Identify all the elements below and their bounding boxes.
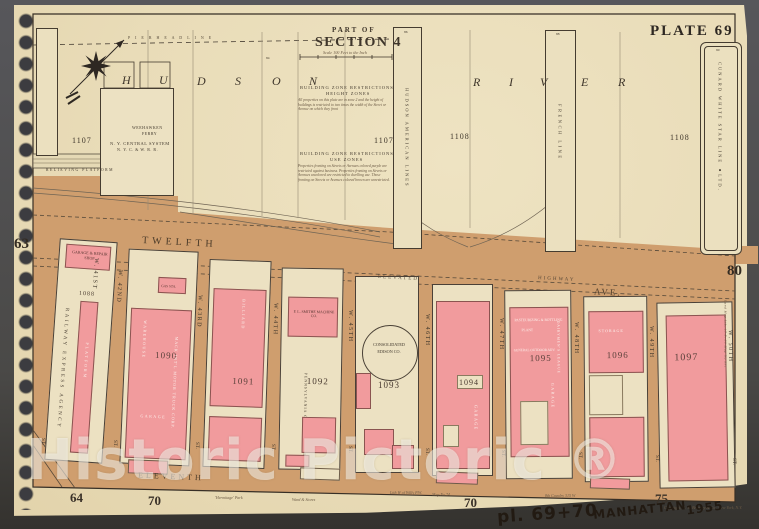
marginal-note: 'Hermitage' Park xyxy=(215,496,243,500)
title-section: SECTION 4 xyxy=(315,36,402,50)
parcel-number: 1107 xyxy=(72,137,92,145)
height-zone-body: All properties on this plate are in zone… xyxy=(298,98,390,112)
pier-label-cunard: CUNARD WHITE STAR LINE ●LTD. xyxy=(717,62,722,192)
block-number: 1097 xyxy=(674,353,698,363)
parcel-number: 1108 xyxy=(670,134,690,142)
pier-label-hudson-american: HUDSON AMERICAN LINES xyxy=(404,88,409,188)
building-label: GARAGE xyxy=(473,405,477,431)
river-name-letter: E xyxy=(581,76,588,88)
use-zone-body: Properties fronting on Streets or Avenue… xyxy=(298,164,390,183)
ferry-name-1: WEEHAWKEN xyxy=(132,126,163,130)
building-mass xyxy=(210,288,267,408)
river-name-letter: I xyxy=(509,76,513,88)
pier-number: 88 xyxy=(556,33,560,37)
street-suffix: ST. xyxy=(654,455,659,462)
pier-structure xyxy=(36,28,58,156)
compass-feather xyxy=(66,92,80,104)
building-smithe: F. L. SMITHE MACHINE CO. xyxy=(288,297,339,338)
building-label-storage: STORAGE xyxy=(598,329,623,334)
river-name-letter: H xyxy=(122,74,131,86)
block-number: 1091 xyxy=(232,377,254,387)
ferry-operator-1: N. Y. CENTRAL SYSTEM xyxy=(110,142,170,147)
river-name-letter: U xyxy=(159,74,168,86)
river-name-letter: S xyxy=(235,75,241,87)
compass-needle xyxy=(70,40,124,94)
height-zone-title: BUILDING ZONE RESTRICTIONS xyxy=(300,86,394,91)
ave-label: AVE. xyxy=(594,287,622,297)
river-name-letter: R xyxy=(618,76,625,88)
marginal-note: 8th Cavalry 315 W xyxy=(545,494,575,498)
pier-label-french-line: FRENCH LINE xyxy=(557,104,562,161)
building-label: F. L. SMITHE MACHINE CO. xyxy=(293,310,335,319)
block-number: 1095 xyxy=(530,354,552,363)
plate-number: PLATE 69 xyxy=(650,24,734,39)
building-label: GARAGE & REPAIR SHOP xyxy=(69,250,110,262)
street-label-w49: W. 49TH xyxy=(648,326,654,359)
street-label-w45: W. 45TH xyxy=(347,310,353,343)
building-label: GAS STA. xyxy=(161,284,176,289)
parcel-number: 1108 xyxy=(450,133,470,141)
street-label-w46: W. 46TH xyxy=(424,314,430,347)
river-name-letter: O xyxy=(272,75,281,87)
building-label-garage: GARAGE xyxy=(550,383,555,409)
watermark: Historic Pictoric ® xyxy=(26,428,623,493)
marginal-note: Ward & Stores xyxy=(292,498,315,502)
building-label-dairy: DAIRYMEN'S LEAGUE xyxy=(555,321,559,374)
relieving-platform xyxy=(33,154,101,168)
marginal-note-side: Land Map Lib. 17 P. 39 Map No 891 xyxy=(723,300,727,368)
building-label: PLATFORM xyxy=(82,342,89,379)
building-mass xyxy=(588,311,644,373)
atlas-plate-scan: GARAGE & REPAIR SHOP 1088 PLATFORM RAILW… xyxy=(0,0,759,529)
river-name-letter: R xyxy=(473,76,480,88)
block-number: 1092 xyxy=(307,377,329,386)
street-label-w43: W. 43RD xyxy=(195,295,202,328)
street-label-w50: W. 50TH xyxy=(727,330,734,363)
pier-number: 86 xyxy=(404,31,408,35)
pier-number: 84 xyxy=(266,57,270,61)
street-label-w44: W. 44TH xyxy=(272,303,279,336)
use-zone-title: BUILDING ZONE RESTRICTIONS xyxy=(300,152,394,157)
building-label: BILLIARD xyxy=(240,299,245,330)
building-mass xyxy=(666,314,729,481)
building-label-plant: PLANT xyxy=(522,329,534,333)
block-number: 1093 xyxy=(378,381,400,390)
building-label-coned1: CONSOLIDATED xyxy=(366,343,412,348)
pier-number: 90 xyxy=(716,49,720,53)
street-label-w48: W. 48TH xyxy=(573,322,579,355)
parcel-number: 1107 xyxy=(374,137,394,145)
block-number: 1096 xyxy=(607,351,629,360)
river-name-letter: V xyxy=(540,76,547,88)
adjoining-plate-right: 80 xyxy=(727,264,742,279)
relieving-platform-label: RELIEVING PLATFORM xyxy=(46,169,114,173)
building-garage-repair: GARAGE & REPAIR SHOP xyxy=(65,244,112,271)
street-label-w47: W. 47TH xyxy=(498,318,504,351)
adjoining-plate-bottom: 70 xyxy=(148,494,161,507)
marginal-note: Map No 74 xyxy=(432,493,450,497)
building-mass xyxy=(356,373,371,409)
title-part-of: PART OF xyxy=(332,27,376,34)
building-label: WAREHOUSE xyxy=(141,320,147,358)
block-number: 1094 xyxy=(459,379,479,387)
building-label-coned2: EDISON CO. xyxy=(366,350,412,355)
adjoining-plate-bottom: 70 xyxy=(464,496,477,509)
building-gas-station: GAS STA. xyxy=(158,277,187,294)
adjoining-plate-left: 63 xyxy=(14,237,29,252)
ferry-name-2: FERRY xyxy=(142,132,157,136)
title-scale: Scale 100 Feet to the Inch xyxy=(323,51,367,55)
building-label-agency: RAILWAY EXPRESS AGENCY xyxy=(56,308,69,430)
height-zone-subtitle: HEIGHT ZONES xyxy=(326,92,370,97)
street-suffix: ST. xyxy=(731,458,736,465)
river-name-letter: D xyxy=(197,75,206,87)
use-zone-subtitle: USE ZONES xyxy=(330,158,363,163)
block-number: 1088 xyxy=(79,291,95,298)
courtyard xyxy=(589,375,623,415)
ferry-operator-2: N. Y. C. & W. R. R. xyxy=(117,148,158,152)
pierhead-line-label: P I E R H E A D L I N E xyxy=(128,36,213,40)
